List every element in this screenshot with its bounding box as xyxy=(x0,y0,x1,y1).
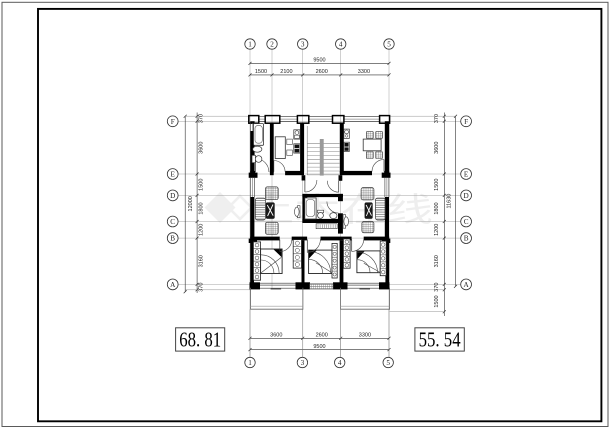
svg-text:D: D xyxy=(170,192,175,200)
svg-text:3160: 3160 xyxy=(434,255,440,267)
svg-text:3600: 3600 xyxy=(434,142,440,154)
svg-text:3: 3 xyxy=(301,41,305,49)
svg-text:1800: 1800 xyxy=(199,202,205,214)
svg-text:F: F xyxy=(464,118,468,126)
svg-text:3: 3 xyxy=(301,359,305,367)
svg-text:D: D xyxy=(463,192,468,200)
svg-text:E: E xyxy=(171,171,176,179)
svg-text:68. 81: 68. 81 xyxy=(179,327,221,351)
svg-text:1: 1 xyxy=(248,359,252,367)
svg-text:55. 54: 55. 54 xyxy=(419,327,461,351)
svg-text:E: E xyxy=(464,171,469,179)
svg-text:B: B xyxy=(464,235,469,243)
svg-text:A: A xyxy=(463,281,469,289)
svg-text:A: A xyxy=(170,281,176,289)
svg-text:1500: 1500 xyxy=(434,179,440,191)
svg-text:5: 5 xyxy=(387,41,391,49)
svg-text:3600: 3600 xyxy=(270,332,282,338)
svg-text:2600: 2600 xyxy=(316,69,328,75)
svg-text:1500: 1500 xyxy=(434,295,440,307)
svg-text:C: C xyxy=(464,218,469,226)
svg-text:9500: 9500 xyxy=(313,344,325,350)
svg-text:1500: 1500 xyxy=(199,179,205,191)
svg-text:2100: 2100 xyxy=(280,69,292,75)
svg-text:3160: 3160 xyxy=(199,255,205,267)
svg-text:370: 370 xyxy=(199,283,205,292)
svg-text:1500: 1500 xyxy=(255,69,267,75)
svg-text:11630: 11630 xyxy=(447,194,453,209)
svg-text:4: 4 xyxy=(338,359,342,367)
svg-text:9500: 9500 xyxy=(313,58,325,64)
svg-text:C: C xyxy=(170,218,175,226)
svg-text:5: 5 xyxy=(386,359,390,367)
svg-text:1800: 1800 xyxy=(434,202,440,214)
svg-text:370: 370 xyxy=(434,114,440,123)
svg-text:2: 2 xyxy=(270,41,274,49)
svg-text:370: 370 xyxy=(199,114,205,123)
svg-text:4: 4 xyxy=(339,41,343,49)
svg-text:2600: 2600 xyxy=(316,332,328,338)
svg-text:B: B xyxy=(170,235,175,243)
svg-text:12000: 12000 xyxy=(188,196,194,211)
svg-text:3600: 3600 xyxy=(199,142,205,154)
svg-text:3300: 3300 xyxy=(358,69,370,75)
svg-text:3300: 3300 xyxy=(359,332,371,338)
svg-text:1: 1 xyxy=(248,41,252,49)
svg-text:F: F xyxy=(171,118,175,126)
svg-text:370: 370 xyxy=(434,283,440,292)
svg-text:1200: 1200 xyxy=(199,224,205,236)
svg-text:1200: 1200 xyxy=(434,224,440,236)
